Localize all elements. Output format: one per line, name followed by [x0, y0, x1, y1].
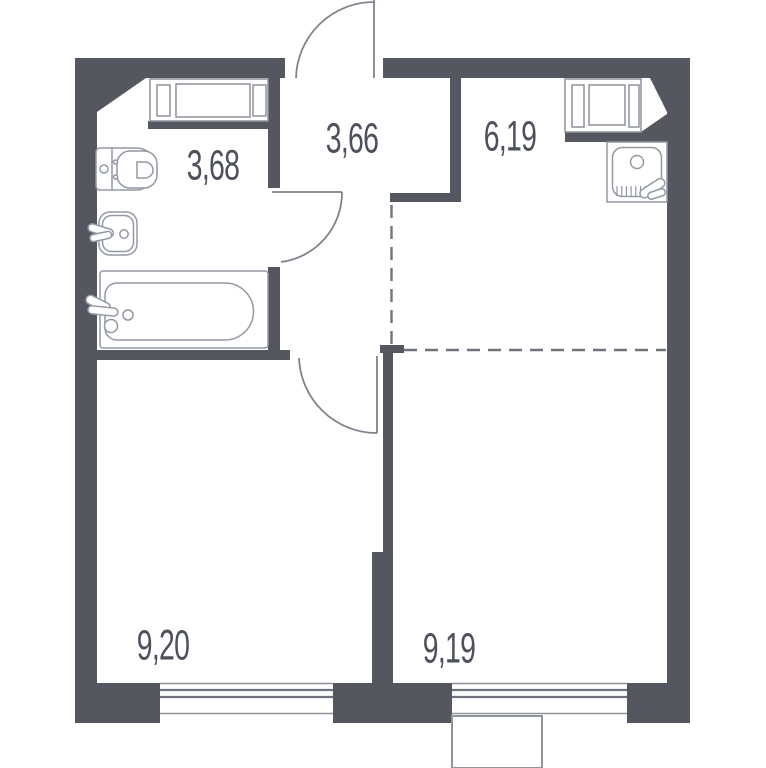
window-left — [160, 684, 333, 714]
room-label-room-right: 9,19 — [423, 625, 476, 674]
room-door — [299, 356, 377, 433]
room-label-hallway: 3,66 — [326, 115, 379, 164]
zone-divider-dashed — [392, 205, 667, 350]
room-label-bathroom: 3,68 — [187, 142, 240, 191]
ac-basket — [452, 716, 542, 768]
bathroom-shaft-block — [150, 79, 268, 121]
kitchen-sink — [607, 142, 667, 202]
entrance-door — [296, 0, 374, 78]
toilet — [96, 148, 157, 190]
window-right — [452, 684, 627, 714]
floor-plan: 3,68 3,66 6,19 9,20 9,19 — [0, 0, 766, 768]
bathroom-door — [272, 192, 342, 262]
bathtub — [84, 271, 268, 348]
kitchen-shaft-block — [565, 79, 641, 132]
room-label-kitchen-living: 6,19 — [484, 113, 537, 162]
floor-plan-drawing — [0, 0, 766, 768]
room-label-room-left: 9,20 — [137, 622, 190, 671]
